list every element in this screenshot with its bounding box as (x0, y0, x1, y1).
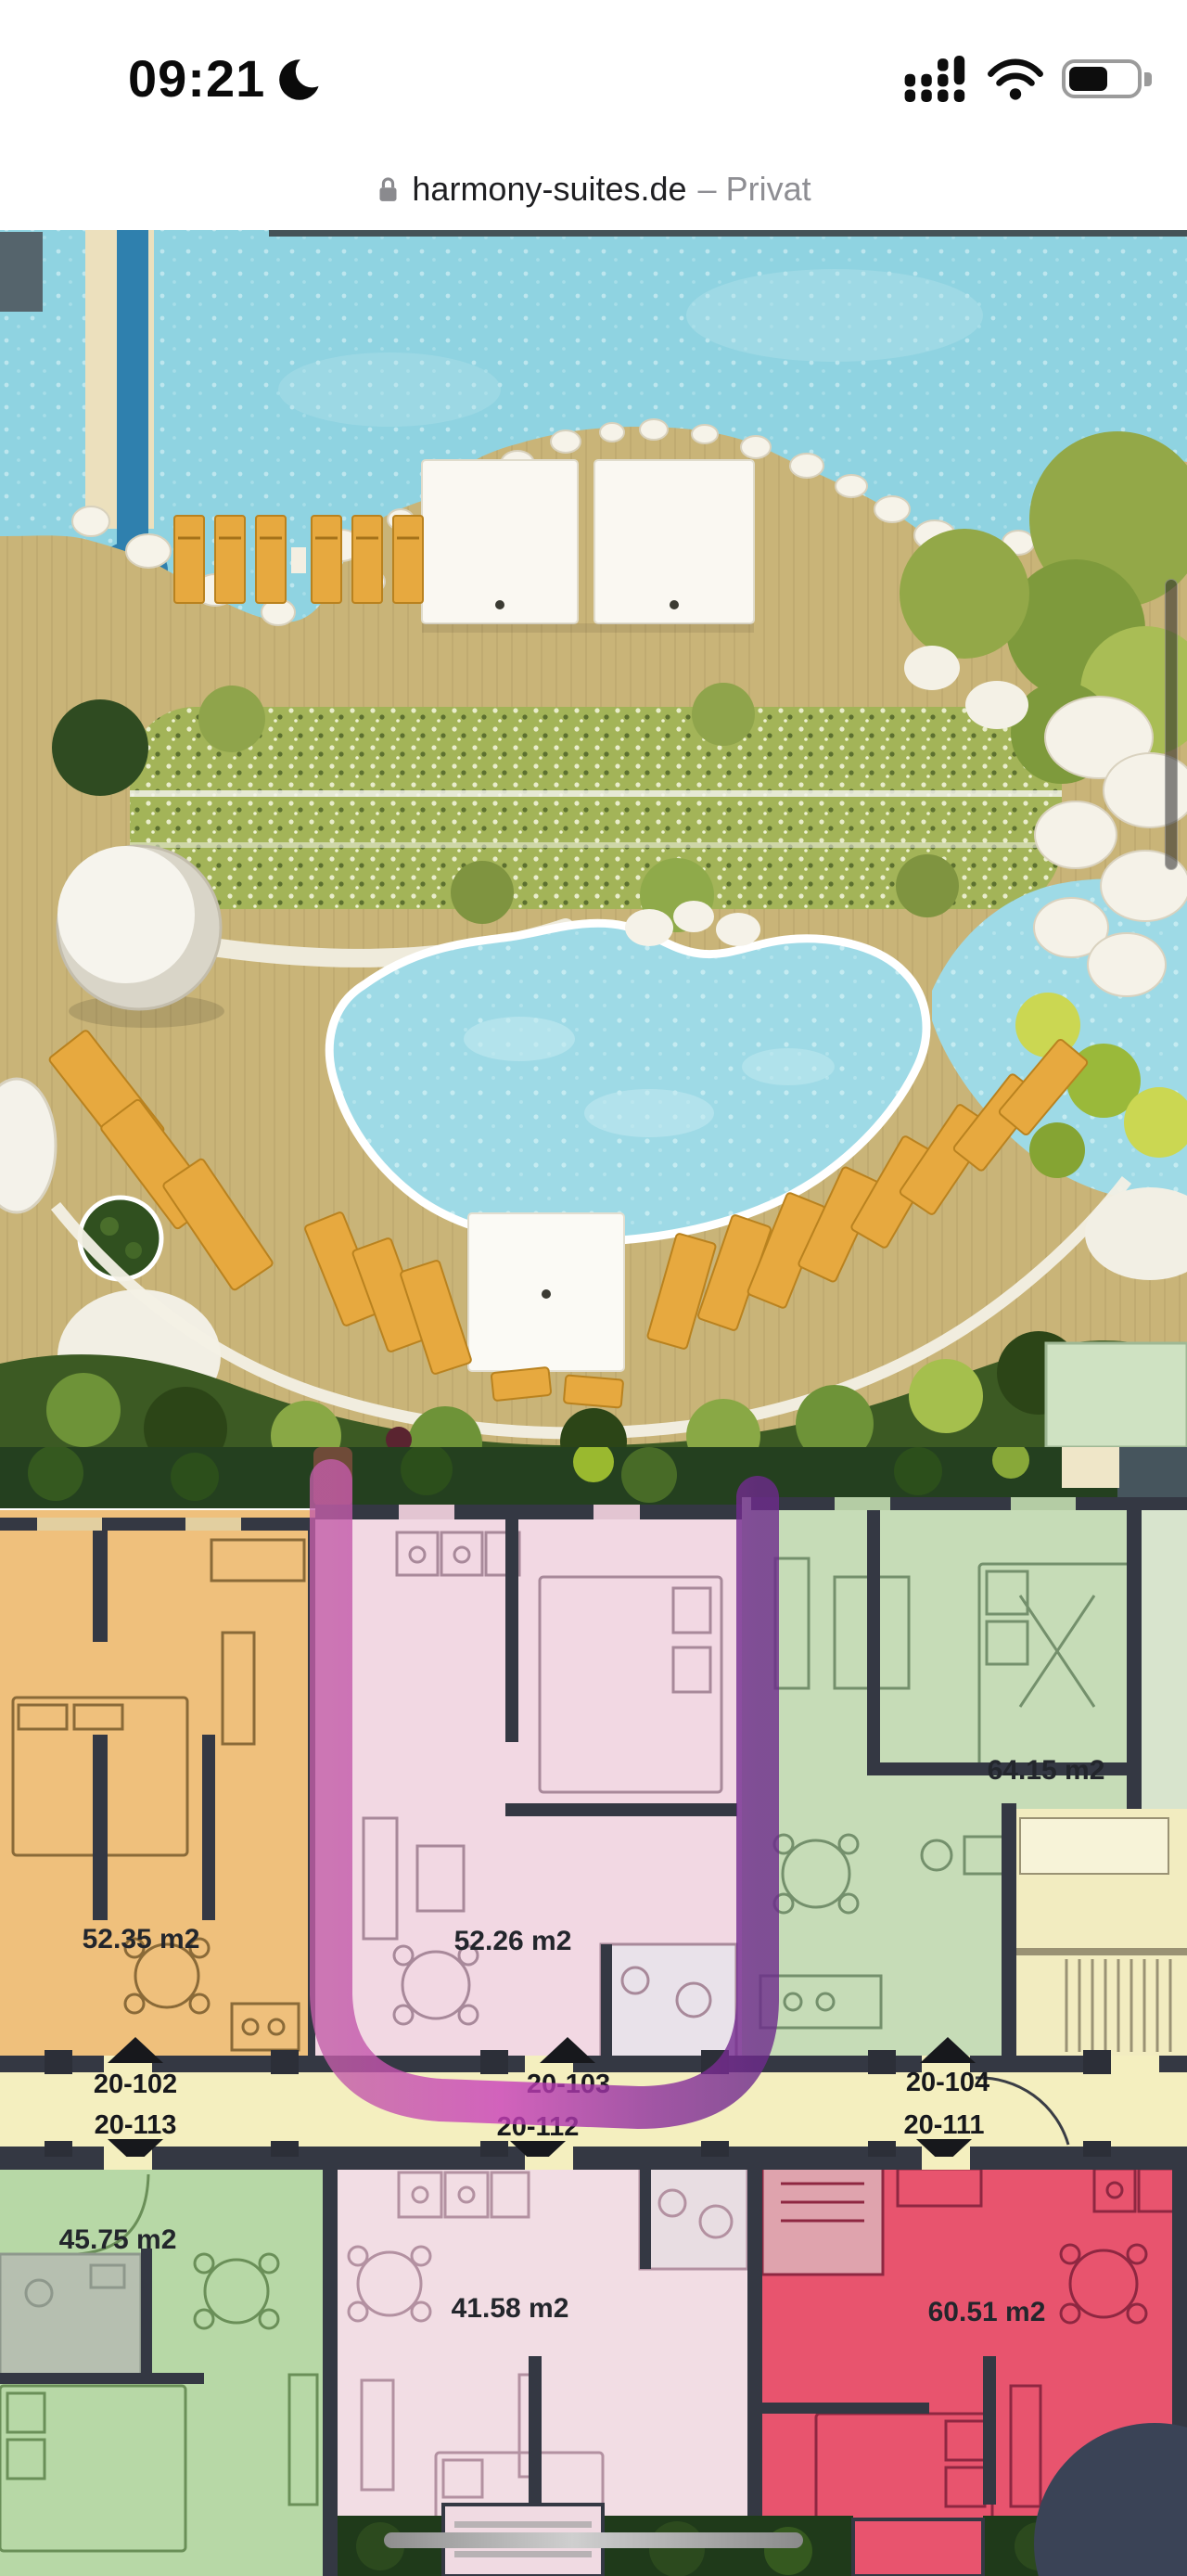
home-indicator[interactable] (384, 2532, 803, 2548)
battery-fill (1069, 67, 1107, 91)
scrollbar[interactable] (1165, 579, 1178, 870)
area-label-64-15: 64.15 m2 (988, 1755, 1105, 1786)
wifi-icon (986, 56, 1045, 102)
status-bar: 09:21 (0, 0, 1187, 158)
unit-plan-52-26[interactable]: 52.26 m2 (315, 1505, 751, 2059)
resort-aerial-view (0, 230, 1187, 1447)
focus-moon-icon (274, 52, 328, 106)
door-label-20-102: 20-102 (94, 2070, 177, 2099)
battery-nub (1144, 72, 1152, 86)
area-label-52-35: 52.35 m2 (83, 1924, 200, 1954)
iphone-safari-screenshot: 09:21 (0, 0, 1187, 2576)
private-mode-label: – Privat (698, 170, 811, 209)
cabana-bottom (468, 1213, 624, 1371)
unit-plan-45-75[interactable]: 45.75 m2 (0, 2161, 323, 2576)
area-label-41-58: 41.58 m2 (452, 2293, 569, 2324)
padlock-icon (376, 174, 401, 205)
door-label-20-111: 20-111 (903, 2110, 984, 2140)
battery-icon (1062, 59, 1152, 98)
unit-plan-52-35[interactable]: 52.35 m2 (0, 1510, 323, 2059)
clock: 09:21 (128, 48, 265, 109)
area-label-45-75: 45.75 m2 (59, 2224, 177, 2255)
address-bar[interactable]: harmony-suites.de – Privat (0, 148, 1187, 230)
stairwell (1016, 1809, 1187, 2057)
area-label-60-51: 60.51 m2 (928, 2297, 1046, 2327)
battery-body (1062, 59, 1142, 98)
round-planter (80, 1198, 161, 1279)
status-right (904, 56, 1152, 102)
floor-plan-view: 52.35 m2 (0, 1447, 1187, 2576)
url-text[interactable]: harmony-suites.de (412, 170, 686, 209)
door-label-20-104: 20-104 (906, 2068, 989, 2097)
status-left: 09:21 (128, 48, 328, 109)
area-label-52-26: 52.26 m2 (454, 1926, 572, 1956)
cellular-signal-icon (904, 56, 969, 102)
door-label-20-113: 20-113 (95, 2110, 177, 2140)
